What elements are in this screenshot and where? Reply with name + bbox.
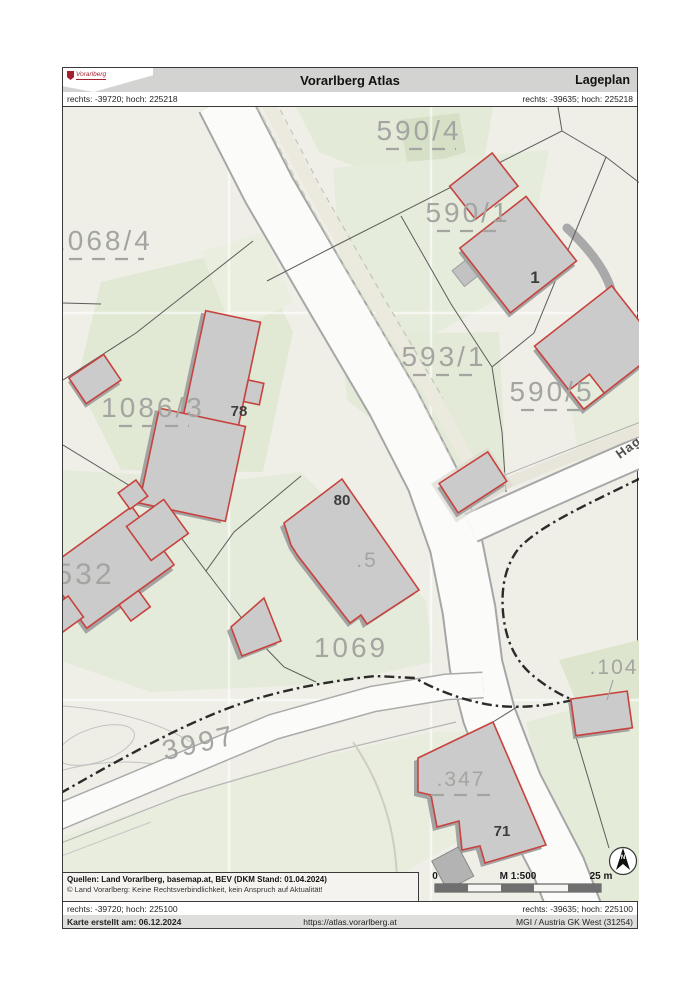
map-frame: 590/4 1068/4 590/1 593/1 1086/3 590/5 10…	[62, 106, 638, 902]
building-label-71: 71	[494, 823, 511, 840]
scale-distance-label: 25 m	[590, 871, 613, 882]
building-label-1: 1	[530, 268, 539, 287]
sources-box: Quellen: Land Vorarlberg, basemap.at, BE…	[62, 872, 419, 902]
map-sheet: Vorarlberg Atlas Lageplan Vorarlberg rec…	[0, 0, 700, 990]
logo-shield-icon	[67, 71, 74, 80]
parcel-label-1068-4: 1068/4	[63, 225, 153, 256]
footer-bar: https://atlas.vorarlberg.at Karte erstel…	[62, 915, 638, 929]
parcel-label-590-4: 590/4	[376, 115, 461, 146]
building-104	[568, 691, 633, 739]
parcel-label-590-1: 590/1	[425, 197, 510, 228]
north-arrow-icon: N	[610, 848, 637, 875]
parcel-label-1086-3: 1086/3	[101, 392, 205, 423]
doc-type-label: Lageplan	[575, 73, 630, 87]
building-label-78: 78	[231, 403, 248, 420]
parcel-label-590-5: 590/5	[509, 376, 594, 407]
parcel-label-5: .5	[356, 549, 378, 572]
sources-line: Quellen: Land Vorarlberg, basemap.at, BE…	[67, 875, 414, 885]
parcel-label-104: .104	[590, 656, 639, 679]
coord-bottom-left: rechts: -39720; hoch: 225100	[67, 904, 178, 914]
coord-bottom-right: rechts: -39635; hoch: 225100	[522, 904, 633, 914]
coordinates-top: rechts: -39720; hoch: 225218 rechts: -39…	[62, 92, 638, 107]
parcel-label-593-1: 593/1	[401, 341, 486, 372]
map-canvas: 590/4 1068/4 590/1 593/1 1086/3 590/5 10…	[63, 107, 639, 902]
north-letter: N	[621, 855, 625, 861]
scale-zero-label: 0	[432, 871, 438, 882]
coord-top-right: rechts: -39635; hoch: 225218	[522, 94, 633, 104]
coordinates-bottom: rechts: -39720; hoch: 225100 rechts: -39…	[62, 901, 638, 916]
parcel-label-347: .347	[437, 768, 486, 791]
created-date: Karte erstellt am: 06.12.2024	[67, 917, 181, 927]
crs-label: MGI / Austria GK West (31254)	[516, 917, 633, 927]
building-label-80: 80	[334, 492, 351, 509]
parcel-label-1069: 1069	[314, 632, 388, 663]
parcel-label-532: 532	[63, 558, 115, 591]
copyright-line: © Land Vorarlberg: Keine Rechtsverbindli…	[67, 885, 414, 895]
scale-ratio-label: M 1:500	[500, 871, 537, 882]
coord-top-left: rechts: -39720; hoch: 225218	[67, 94, 178, 104]
logo-text: Vorarlberg	[76, 71, 106, 80]
